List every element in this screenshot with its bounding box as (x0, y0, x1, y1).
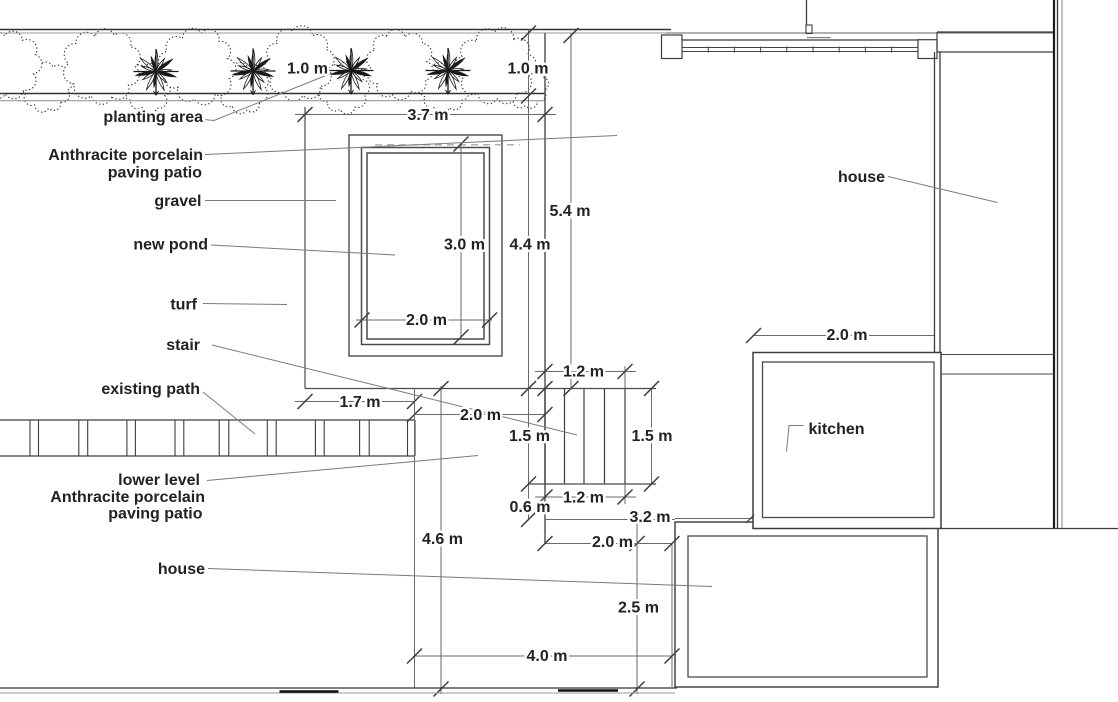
svg-text:stair: stair (166, 337, 200, 354)
svg-text:4.4 m: 4.4 m (510, 237, 551, 254)
svg-text:1.0 m: 1.0 m (287, 61, 328, 78)
svg-text:3.2 m: 3.2 m (630, 509, 671, 526)
svg-text:3.7 m: 3.7 m (408, 107, 449, 124)
svg-text:0.6 m: 0.6 m (510, 499, 551, 516)
svg-text:existing path: existing path (101, 381, 200, 398)
svg-text:Anthracite porcelain: Anthracite porcelain (50, 489, 205, 506)
svg-text:2.0 m: 2.0 m (827, 327, 868, 344)
svg-text:2.0 m: 2.0 m (460, 407, 501, 424)
svg-text:1.5 m: 1.5 m (632, 428, 673, 445)
svg-text:3.0 m: 3.0 m (444, 237, 485, 254)
svg-text:kitchen: kitchen (809, 421, 865, 438)
svg-text:house: house (158, 561, 205, 578)
svg-text:new pond: new pond (133, 237, 208, 254)
svg-text:house: house (838, 169, 885, 186)
svg-text:1.5 m: 1.5 m (509, 428, 550, 445)
svg-text:1.2 m: 1.2 m (563, 490, 604, 507)
svg-text:2.5 m: 2.5 m (618, 600, 659, 617)
svg-text:1.7 m: 1.7 m (340, 394, 381, 411)
svg-text:2.0 m: 2.0 m (406, 312, 447, 329)
svg-text:1.2 m: 1.2 m (563, 364, 604, 381)
svg-text:1.0 m: 1.0 m (508, 61, 549, 78)
svg-text:planting area: planting area (103, 109, 203, 126)
svg-text:paving patio: paving patio (108, 165, 202, 182)
svg-text:4.0 m: 4.0 m (527, 648, 568, 665)
svg-text:5.4 m: 5.4 m (550, 203, 591, 220)
svg-text:paving patio: paving patio (108, 506, 202, 523)
svg-text:2.0 m: 2.0 m (592, 534, 633, 551)
svg-text:gravel: gravel (154, 193, 201, 210)
svg-text:Anthracite porcelain: Anthracite porcelain (48, 147, 203, 164)
svg-text:lower level: lower level (118, 472, 200, 489)
svg-text:turf: turf (170, 297, 197, 314)
svg-text:4.6 m: 4.6 m (422, 531, 463, 548)
